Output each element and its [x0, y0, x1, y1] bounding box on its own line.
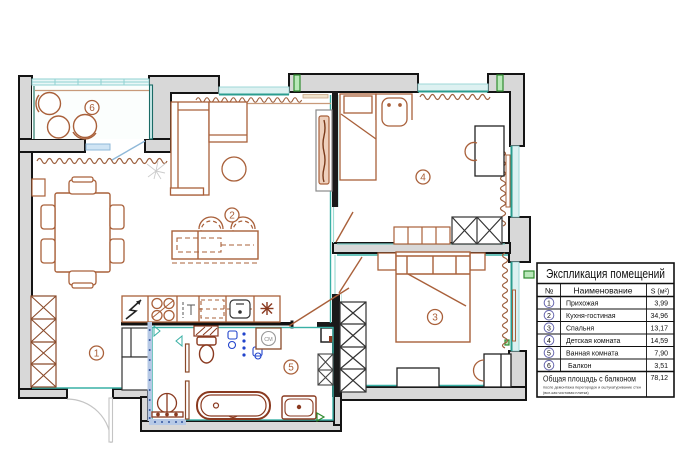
svg-text:13,17: 13,17 — [650, 325, 668, 332]
svg-text:Балкон: Балкон — [568, 363, 592, 370]
svg-text:Спальня: Спальня — [566, 325, 594, 332]
svg-text:14,59: 14,59 — [650, 338, 668, 345]
svg-text:6: 6 — [547, 363, 551, 370]
svg-text:5: 5 — [288, 363, 294, 374]
svg-text:Общая площадь с балконом: Общая площадь с балконом — [543, 374, 636, 384]
svg-text:Наименование: Наименование — [574, 286, 633, 296]
svg-text:Экспликация помещений: Экспликация помещений — [546, 266, 665, 281]
svg-text:Ванная комната: Ванная комната — [566, 350, 619, 357]
svg-text:3,99: 3,99 — [654, 300, 668, 307]
svg-text:2: 2 — [547, 313, 551, 320]
svg-text:Кухня-гостиная: Кухня-гостиная — [566, 313, 616, 320]
svg-text:5: 5 — [547, 350, 551, 357]
svg-text:7,90: 7,90 — [654, 350, 668, 357]
svg-text:4: 4 — [420, 173, 426, 184]
svg-text:3: 3 — [547, 325, 551, 332]
svg-text:2: 2 — [229, 211, 235, 222]
svg-text:после демонтажа перегородок и: после демонтажа перегородок и оштукатури… — [543, 386, 641, 390]
svg-text:1: 1 — [547, 300, 551, 307]
svg-text:(вкл-кая чистовая плитка): (вкл-кая чистовая плитка) — [543, 391, 589, 395]
svg-text:Детская комната: Детская комната — [566, 338, 620, 345]
svg-text:3: 3 — [432, 313, 438, 324]
svg-text:Прихожая: Прихожая — [566, 300, 599, 307]
svg-text:СМ: СМ — [264, 337, 273, 343]
svg-text:6: 6 — [89, 103, 95, 114]
svg-text:4: 4 — [547, 338, 551, 345]
svg-text:34,96: 34,96 — [650, 313, 668, 320]
svg-text:1: 1 — [94, 349, 100, 360]
svg-text:S (м²): S (м²) — [651, 289, 669, 296]
svg-text:3,51: 3,51 — [654, 363, 668, 370]
svg-text:78,12: 78,12 — [650, 375, 668, 382]
svg-text:№: № — [545, 287, 554, 296]
